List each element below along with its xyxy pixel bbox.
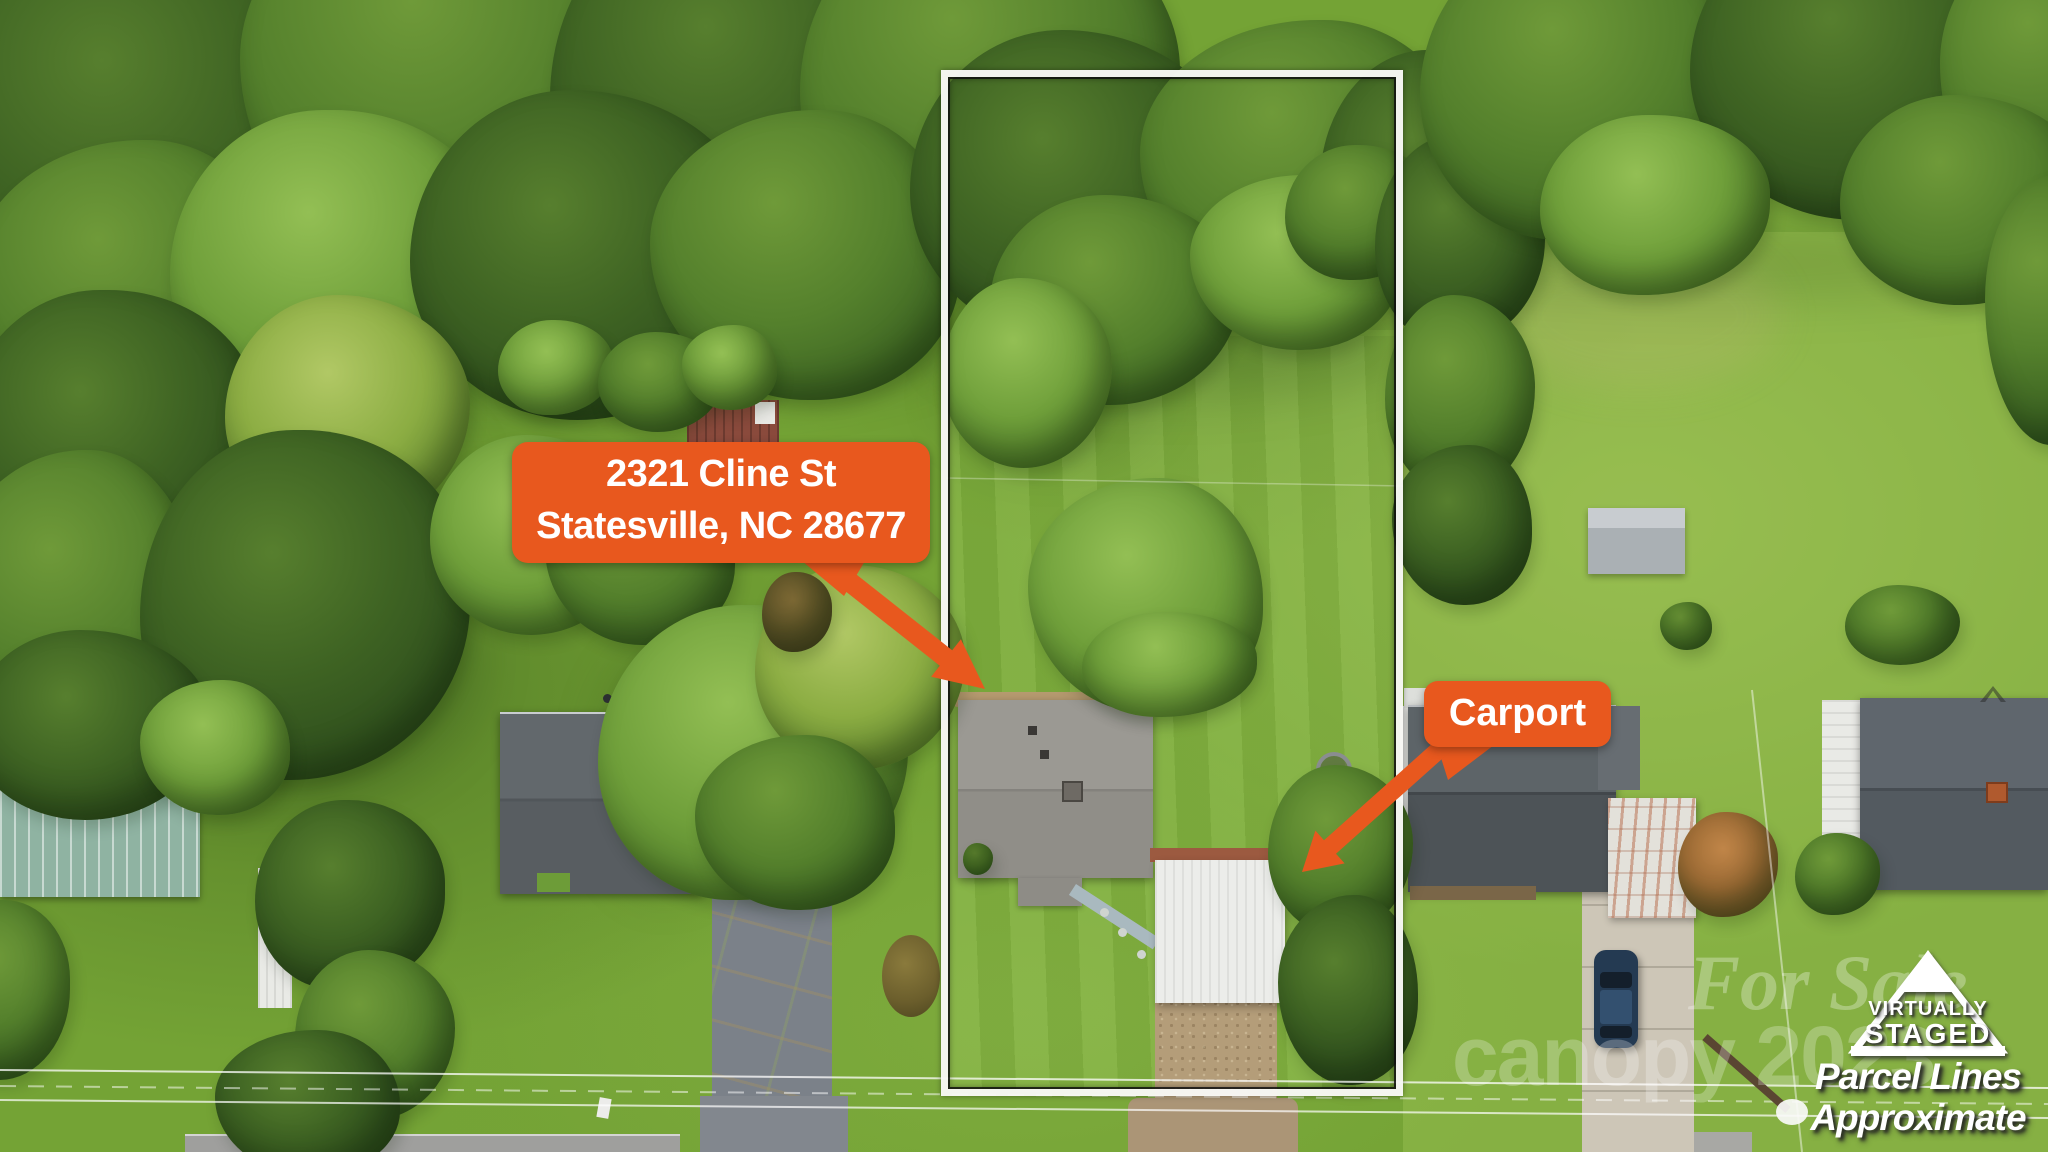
- parcel-note-line1: Parcel Lines: [1788, 1056, 2048, 1097]
- address-line2: Statesville, NC 28677: [512, 500, 930, 552]
- address-line1: 2321 Cline St: [512, 448, 930, 500]
- carport-arrow: [1302, 731, 1458, 872]
- aerial-photo: For Sale canopy 2023 2321 Cline St State…: [0, 0, 2048, 1152]
- virtually-staged-logo: VIRTUALLY STAGED: [1843, 948, 2013, 1062]
- staged-logo-line2: STAGED: [1843, 1018, 2013, 1050]
- parcel-note: Parcel Lines Approximate: [1788, 1056, 2048, 1139]
- carport-callout: Carport: [1424, 681, 1611, 747]
- carport-label: Carport: [1449, 692, 1586, 734]
- address-arrow: [816, 552, 985, 689]
- parcel-note-line2: Approximate: [1788, 1097, 2048, 1138]
- address-callout: 2321 Cline St Statesville, NC 28677: [512, 442, 930, 563]
- annotation-arrows: [0, 0, 2048, 1152]
